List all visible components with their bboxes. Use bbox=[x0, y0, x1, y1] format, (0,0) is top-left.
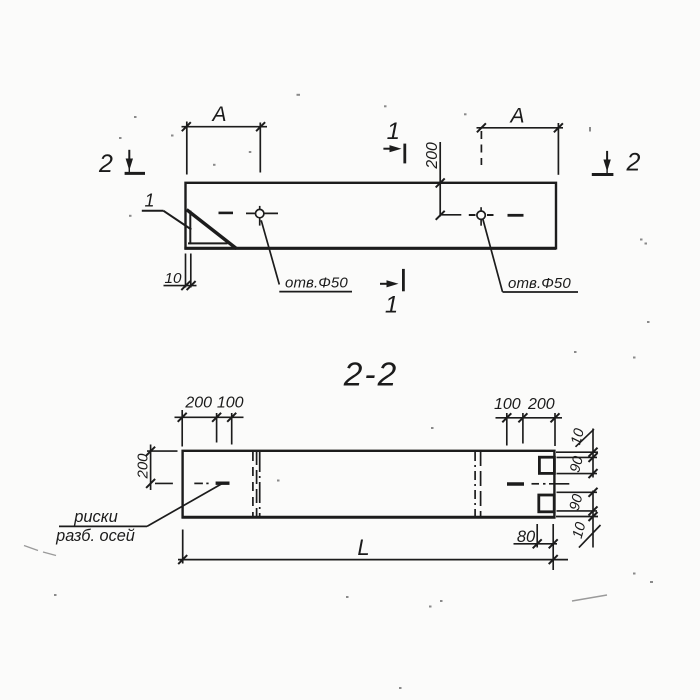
svg-text:1: 1 bbox=[144, 191, 154, 211]
svg-text:1: 1 bbox=[387, 118, 400, 145]
svg-text:2: 2 bbox=[626, 149, 641, 177]
svg-text:2: 2 bbox=[98, 150, 113, 178]
svg-text:200: 200 bbox=[134, 453, 151, 480]
svg-text:A: A bbox=[508, 104, 524, 127]
svg-text:80: 80 bbox=[517, 528, 536, 546]
svg-text:разб. осей: разб. осей bbox=[55, 527, 135, 545]
svg-text:10: 10 bbox=[165, 270, 182, 287]
svg-text:200: 200 bbox=[527, 396, 555, 413]
svg-text:1: 1 bbox=[385, 292, 398, 319]
svg-text:отв.Φ50: отв.Φ50 bbox=[508, 275, 571, 292]
svg-text:90: 90 bbox=[567, 493, 587, 513]
svg-text:100: 100 bbox=[217, 395, 244, 412]
svg-text:риски: риски bbox=[73, 508, 118, 526]
svg-text:200: 200 bbox=[184, 395, 212, 412]
svg-text:10: 10 bbox=[570, 521, 590, 541]
svg-text:2-2: 2-2 bbox=[343, 356, 398, 393]
svg-text:200: 200 bbox=[424, 142, 441, 170]
svg-text:A: A bbox=[210, 103, 226, 126]
svg-text:отв.Φ50: отв.Φ50 bbox=[285, 275, 348, 292]
svg-text:L: L bbox=[357, 535, 369, 560]
svg-text:100: 100 bbox=[494, 396, 521, 413]
